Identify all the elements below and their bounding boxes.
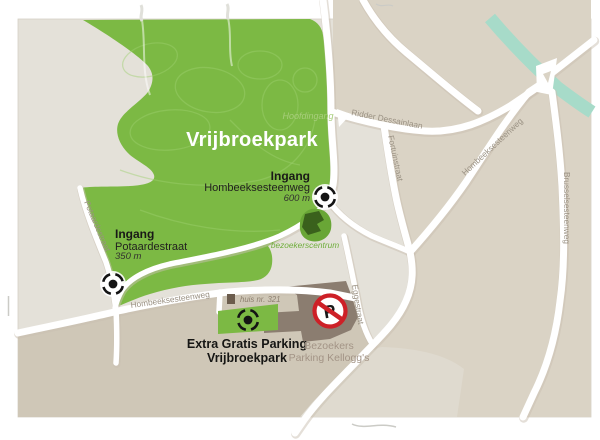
hoofdingang-label: Hoofdingang <box>282 111 333 121</box>
margin-road-stubs <box>141 4 228 21</box>
entrance-east-distance: 600 m <box>284 193 310 204</box>
street-brusselsesteenweg: Brusselsesteenweg <box>562 172 572 244</box>
fold-mark-bottom <box>352 424 396 427</box>
huis-321-label: huis nr. 321 <box>240 295 280 304</box>
park-title: Vrijbroekpark <box>186 129 318 151</box>
huis-321-building <box>227 294 235 304</box>
entrance-west-title: Ingang <box>115 227 154 241</box>
kelloggs-line2: Parking Kellogg's <box>289 352 370 364</box>
marker-extra-parking <box>236 308 260 332</box>
extra-parking-line1: Extra Gratis Parking <box>187 337 307 351</box>
entrance-west-distance: 350 m <box>115 251 141 262</box>
marker-entrance-potaardestraat <box>100 271 126 297</box>
extra-parking-line2: Vrijbroekpark <box>207 351 287 365</box>
marker-entrance-hombeeksesteenweg <box>312 184 338 210</box>
kelloggs-line1: Bezoekers <box>304 340 354 352</box>
road-parking-stub <box>219 292 220 312</box>
bezoekerscentrum-label: bezoekerscentrum <box>271 240 339 250</box>
entrance-east-title: Ingang <box>271 169 310 183</box>
park-map: P Ridder Dessainlaan Fortuinstraat Hombe… <box>0 0 600 440</box>
